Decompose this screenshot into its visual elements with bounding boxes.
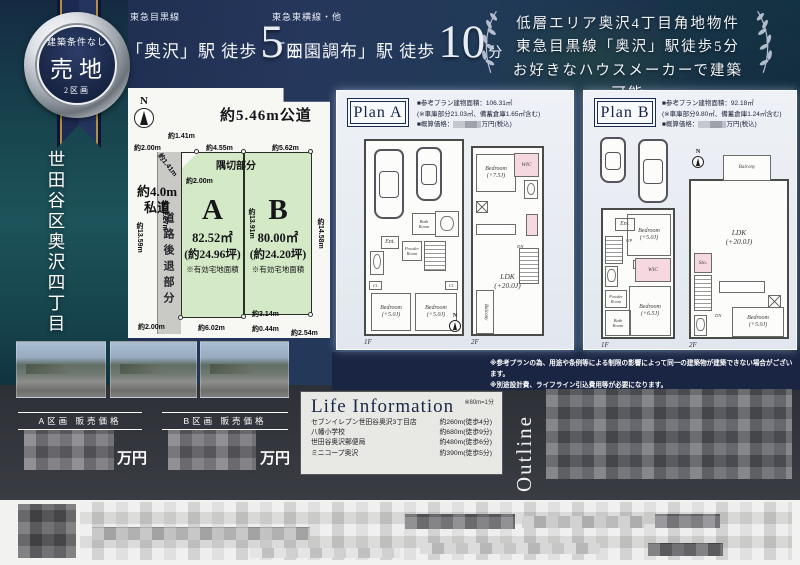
room-balcony: Balcony bbox=[476, 290, 494, 334]
north-compass-icon: N bbox=[449, 313, 461, 332]
car-icon bbox=[416, 147, 442, 201]
life-item-distance: 約680m(徒歩9分) bbox=[440, 428, 493, 438]
compass-n-label: N bbox=[696, 149, 700, 155]
plan-b-1f-tag: 1F bbox=[601, 341, 609, 349]
sale-medallion-inner: 建築条件なし 売地 2区画 bbox=[37, 25, 117, 105]
street-photo bbox=[110, 341, 197, 398]
corner-cut-shape bbox=[182, 153, 197, 168]
life-item: 八幡小学校 約680m(徒歩9分) bbox=[311, 428, 492, 438]
catch-line1: 低層エリア奥沢4丁目角地物件 bbox=[508, 13, 748, 36]
stairs bbox=[424, 241, 446, 271]
plan-b-panel: Plan B ■参考プラン建物面積：92.18㎡ (※車庫部分9.80㎡、備蓄倉… bbox=[583, 90, 797, 350]
life-item-name: 八幡小学校 bbox=[311, 428, 345, 438]
measure-141-top: 約1.41m bbox=[168, 131, 195, 141]
plan-b-1f-floorplan: Ent. UP Bedroom (+5.0J) Cl. WIC Powder R… bbox=[601, 208, 675, 339]
room-closet: Cl. bbox=[445, 281, 458, 290]
lot-a-id: A bbox=[181, 196, 244, 225]
room-bedroom: Bedroom (+5.0J) bbox=[627, 214, 671, 256]
room-wic: WIC bbox=[514, 153, 539, 177]
lot-a-label: A 82.52㎡ (約24.96坪) ※有効宅地面積 bbox=[181, 196, 244, 275]
lot-a-price-redacted bbox=[24, 430, 114, 470]
room-powder: Powder Room bbox=[402, 241, 422, 261]
lot-b-note: ※有効宅地面積 bbox=[244, 264, 312, 275]
plan-b-2f-tag: 2F bbox=[689, 341, 697, 349]
room-storage bbox=[526, 214, 538, 236]
measure-044: 約0.44m bbox=[252, 324, 279, 334]
stairs bbox=[605, 236, 623, 264]
room-bedroom: Bedroom (+7.5J) bbox=[476, 154, 516, 192]
room-closet: Cl. bbox=[369, 281, 382, 290]
access-station: 「奥沢」駅 徒歩 bbox=[126, 37, 257, 62]
plan-a-2f-floorplan: Bedroom (+7.5J) WIC DN LDK (+20.0J) Balc… bbox=[471, 146, 544, 336]
measure-562: 約5.62m bbox=[272, 143, 299, 153]
life-item: 世田谷奥沢郵便局 約480m(徒歩6分) bbox=[311, 438, 492, 448]
measure-254: 約2.54m bbox=[291, 328, 318, 338]
room-ldk: LDK (+20.0J) bbox=[691, 225, 787, 249]
life-item: ミニコープ奥沢 約390m(徒歩5分) bbox=[311, 449, 492, 459]
plan-a-area-note: (※車庫部分21.03㎡、備蓄倉庫1.65㎡含む) bbox=[417, 110, 569, 121]
outline-title: Outline bbox=[512, 388, 537, 492]
street-photo bbox=[16, 341, 106, 398]
corner-cut-label: 隅切部分 bbox=[216, 157, 256, 172]
measure-200-top: 約2.00m bbox=[134, 143, 161, 153]
room-bedroom: Bedroom (+5.0J) bbox=[732, 307, 784, 337]
badge-lots-text: 2区画 bbox=[64, 85, 90, 96]
street-photo bbox=[200, 341, 289, 398]
private-road-word: 私道 bbox=[128, 200, 186, 216]
lot-b-price-unit: 万円 bbox=[260, 447, 290, 468]
lot-a-note: ※有効宅地面積 bbox=[181, 264, 244, 275]
lot-a-tsubo: (約24.96坪) bbox=[181, 246, 244, 262]
measure-602: 約6.02m bbox=[198, 323, 225, 333]
compass-circle bbox=[134, 108, 154, 128]
badge-sale-text: 売地 bbox=[50, 50, 108, 84]
plan-a-badge: Plan A bbox=[347, 98, 409, 127]
measure-1359: 約13.59m bbox=[134, 222, 144, 253]
room-storage: Sto. bbox=[694, 253, 712, 273]
compass-circle bbox=[449, 320, 461, 332]
compass-n-label: N bbox=[140, 96, 148, 107]
access-denenchofu: 東急東横線・他 「田園調布」駅 徒歩 10 分 bbox=[268, 10, 502, 63]
vertex-marker bbox=[308, 312, 313, 317]
plan-b-area: ■参考プラン建物面積：92.18㎡ bbox=[662, 99, 794, 110]
life-item-name: ミニコープ奥沢 bbox=[311, 449, 358, 459]
company-info-redacted bbox=[405, 514, 515, 529]
company-info-redacted bbox=[522, 516, 644, 528]
life-item-distance: 約390m(徒歩5分) bbox=[440, 449, 493, 459]
sale-medallion-badge: 建築条件なし 売地 2区画 bbox=[24, 12, 130, 118]
toilet-icon bbox=[524, 180, 538, 199]
measure-200-corner: 約2.00m bbox=[186, 176, 213, 186]
lot-a-price-unit: 万円 bbox=[117, 447, 147, 468]
room-balcony: Balcony bbox=[723, 155, 771, 181]
life-item: セブンイレブン世田谷奥沢3丁目店 約260m(徒歩4分) bbox=[311, 418, 492, 428]
room-ldk: LDK (+20.0J) bbox=[473, 270, 542, 292]
badge-condition-text: 建築条件なし bbox=[47, 35, 107, 48]
bathtub-icon bbox=[435, 211, 459, 237]
lot-a-price-label: A区画 販売価格 bbox=[18, 412, 142, 430]
plan-a-price-redacted bbox=[453, 121, 481, 128]
plan-b-specs: ■参考プラン建物面積：92.18㎡ (※車庫部分9.80㎡、備蓄倉庫1.24㎡含… bbox=[662, 99, 794, 131]
plan-a-panel: Plan A ■参考プラン建物面積：106.31㎡ (※車庫部分21.03㎡、備… bbox=[336, 90, 574, 350]
car-icon bbox=[600, 137, 626, 183]
life-information-box: ※80m=1分 Life Information セブンイレブン世田谷奥沢3丁目… bbox=[300, 391, 503, 475]
private-road-label: 約4.0m 私道 bbox=[128, 184, 186, 217]
plan-a-area: ■参考プラン建物面積：106.31㎡ bbox=[417, 99, 569, 110]
plan-b-price-prefix: ■概算価格： bbox=[662, 121, 698, 128]
room-powder: Powder Room bbox=[605, 290, 627, 308]
measure-314: 約3.14m bbox=[252, 309, 279, 319]
toilet-icon bbox=[370, 251, 384, 275]
laurel-right-icon bbox=[752, 8, 780, 76]
plan-a-1f-floorplan: Bath Room Ent. Powder Room Cl. Cl. Bedro… bbox=[364, 139, 464, 336]
car-icon bbox=[374, 149, 404, 219]
measure-455: 約4.55m bbox=[206, 143, 233, 153]
compass-n-label: N bbox=[453, 313, 457, 319]
company-logo-redacted bbox=[18, 504, 76, 558]
room-bath: Bath Room bbox=[412, 213, 436, 235]
compass-circle bbox=[692, 156, 704, 168]
room-bath: Bath Room bbox=[605, 310, 631, 336]
company-info-redacted bbox=[250, 548, 400, 558]
outline-redacted-content bbox=[546, 389, 792, 479]
life-item-distance: 約480m(徒歩6分) bbox=[440, 438, 493, 448]
life-item-name: 世田谷奥沢郵便局 bbox=[311, 438, 365, 448]
company-info-redacted bbox=[655, 514, 720, 528]
lot-b-price-label: B区画 販売価格 bbox=[162, 412, 288, 430]
stairs-dn-label: DN bbox=[715, 313, 721, 318]
room-bedroom: Bedroom (+5.0J) bbox=[371, 293, 411, 331]
measure-1227: 約12.27m bbox=[159, 200, 169, 231]
room-wic: WIC bbox=[635, 258, 671, 282]
plan-b-badge: Plan B bbox=[594, 98, 656, 127]
vertex-marker bbox=[194, 149, 199, 154]
vertex-marker bbox=[178, 315, 183, 320]
laurel-left-icon bbox=[474, 8, 502, 76]
washer-icon bbox=[476, 201, 488, 213]
lot-a-area: 82.52㎡ bbox=[181, 227, 244, 246]
plan-a-price-line: ■概算価格：万円(税込) bbox=[417, 120, 569, 131]
plan-a-1f-tag: 1F bbox=[364, 338, 372, 346]
toilet-icon bbox=[605, 266, 618, 287]
company-info-redacted bbox=[648, 543, 723, 556]
company-info-redacted bbox=[92, 527, 310, 540]
stairs bbox=[694, 275, 712, 311]
vertex-marker bbox=[308, 149, 313, 154]
location-title: 世田谷区奥沢四丁目 bbox=[44, 150, 69, 335]
flyer-page: 建築条件なし 売地 2区画 東急目黒線 「奥沢」駅 徒歩 5 分 東急東横線・他… bbox=[0, 0, 800, 565]
kitchen-counter bbox=[476, 224, 516, 235]
lot-b-price-redacted bbox=[168, 430, 256, 470]
plan-disclaimer: ※参考プランの為、用途や条例等による制限の影響によって同一の建築物が建築できない… bbox=[490, 358, 796, 392]
measure-1391: 約13.91m bbox=[246, 208, 256, 239]
plan-b-price-redacted bbox=[698, 121, 726, 128]
lot-b-tsubo: (約24.20坪) bbox=[244, 246, 312, 262]
room-bedroom: Bedroom (+6.5J) bbox=[629, 286, 671, 336]
room-entrance: Ent. bbox=[381, 236, 399, 249]
north-compass-icon: N bbox=[134, 96, 154, 128]
plan-b-price-line: ■概算価格：万円(税込) bbox=[662, 120, 794, 131]
plan-b-price-suffix: 万円(税込) bbox=[726, 121, 756, 128]
catch-line2: 東急目黒線「奥沢」駅徒歩5分 bbox=[508, 36, 748, 59]
life-item-name: セブンイレブン世田谷奥沢3丁目店 bbox=[311, 418, 417, 428]
plan-a-price-suffix: 万円(税込) bbox=[481, 121, 511, 128]
north-compass-icon: N bbox=[692, 149, 704, 168]
plan-b-area-note: (※車庫部分9.80㎡、備蓄倉庫1.24㎡含む) bbox=[662, 110, 794, 121]
company-info-redacted bbox=[420, 543, 600, 554]
plan-b-2f-floorplan: Balcony LDK (+20.0J) Sto. DN Bedroom (+5… bbox=[689, 179, 789, 339]
walk-conversion-note: ※80m=1分 bbox=[464, 397, 494, 406]
plan-a-specs: ■参考プラン建物面積：106.31㎡ (※車庫部分21.03㎡、備蓄倉庫1.65… bbox=[417, 99, 569, 131]
public-road-label: 約5.46m公道 bbox=[220, 104, 312, 125]
measure-200-bottom: 約2.00m bbox=[138, 322, 165, 332]
vertex-marker bbox=[241, 314, 246, 319]
life-item-distance: 約260m(徒歩4分) bbox=[440, 418, 493, 428]
access-row: 「田園調布」駅 徒歩 10 分 bbox=[268, 23, 502, 63]
car-icon bbox=[638, 139, 668, 203]
toilet-icon bbox=[694, 315, 707, 336]
private-road-width: 約4.0m bbox=[128, 184, 186, 200]
plan-a-price-prefix: ■概算価格： bbox=[417, 121, 453, 128]
access-station: 「田園調布」駅 徒歩 bbox=[268, 37, 435, 62]
plan-disclaimer-line1: ※参考プランの為、用途や条例等による制限の影響によって同一の建築物が建築できない… bbox=[490, 358, 796, 380]
vertex-marker bbox=[241, 149, 246, 154]
kitchen-counter bbox=[719, 281, 765, 293]
plan-a-2f-tag: 2F bbox=[471, 338, 479, 346]
measure-1458: 約14.58m bbox=[315, 218, 325, 249]
